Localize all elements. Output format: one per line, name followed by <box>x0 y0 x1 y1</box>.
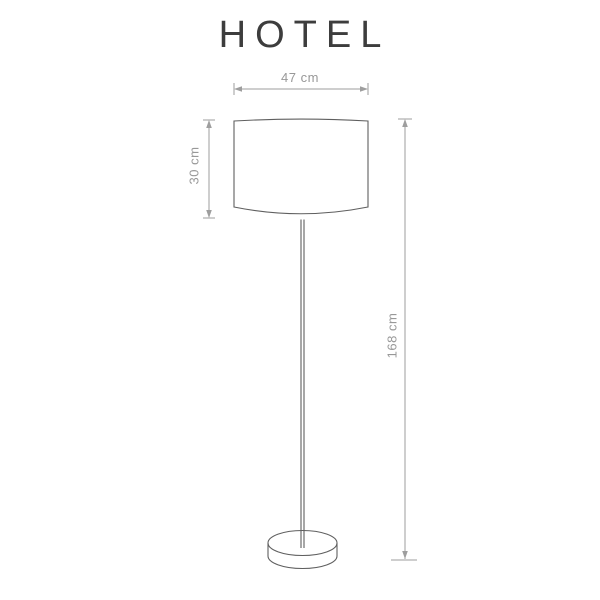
total-height-down-arrow-icon <box>402 551 408 559</box>
lamp-pole <box>301 220 304 549</box>
lamp-base-top-ellipse <box>268 531 337 556</box>
diagram-canvas: HOTEL 47 cm 30 cm 168 cm <box>0 0 600 600</box>
width-dim-left-arrow-icon <box>234 86 242 92</box>
width-dim-right-arrow-icon <box>360 86 368 92</box>
lamp-base-bottom-arc <box>268 556 337 569</box>
lamp-shade-outline <box>234 119 368 214</box>
shade-width-dimension <box>234 83 368 95</box>
shade-height-up-arrow-icon <box>206 120 212 128</box>
shade-height-down-arrow-icon <box>206 210 212 218</box>
total-height-up-arrow-icon <box>402 119 408 127</box>
lamp-shade <box>234 119 368 214</box>
shade-height-dimension <box>203 120 215 218</box>
lamp-base <box>268 531 337 569</box>
lamp-dimension-drawing <box>0 0 600 600</box>
total-height-dimension <box>391 119 417 560</box>
